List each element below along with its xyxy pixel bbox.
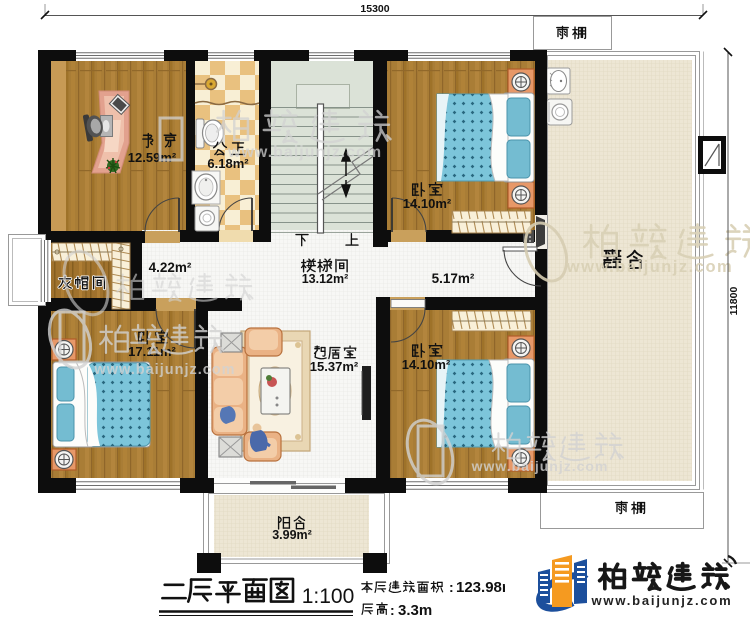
- svg-text:3.99m²: 3.99m²: [272, 528, 312, 542]
- svg-text:www.baijunjz.com: www.baijunjz.com: [227, 144, 382, 161]
- svg-text:15300: 15300: [360, 3, 389, 15]
- svg-text:15.37m²: 15.37m²: [310, 359, 359, 374]
- svg-text:14.10m²: 14.10m²: [403, 196, 452, 211]
- svg-text::: :: [449, 579, 454, 595]
- svg-text::: :: [390, 602, 395, 618]
- svg-text:11800: 11800: [728, 287, 740, 316]
- svg-text:1:100: 1:100: [302, 585, 355, 608]
- svg-text:12.59m²: 12.59m²: [128, 150, 177, 165]
- svg-text:www.baijunjz.com: www.baijunjz.com: [471, 458, 609, 474]
- svg-text:www.baijunjz.com: www.baijunjz.com: [566, 258, 733, 276]
- svg-text:14.10m²: 14.10m²: [402, 357, 451, 372]
- svg-text:www.baijunjz.com: www.baijunjz.com: [591, 593, 733, 608]
- svg-text:4.22m²: 4.22m²: [149, 260, 192, 275]
- svg-text:3.3m: 3.3m: [398, 602, 432, 619]
- svg-text:www.baijunjz.com: www.baijunjz.com: [93, 362, 235, 378]
- svg-text:13.12m²: 13.12m²: [302, 272, 349, 286]
- svg-text:5.17m²: 5.17m²: [432, 271, 475, 286]
